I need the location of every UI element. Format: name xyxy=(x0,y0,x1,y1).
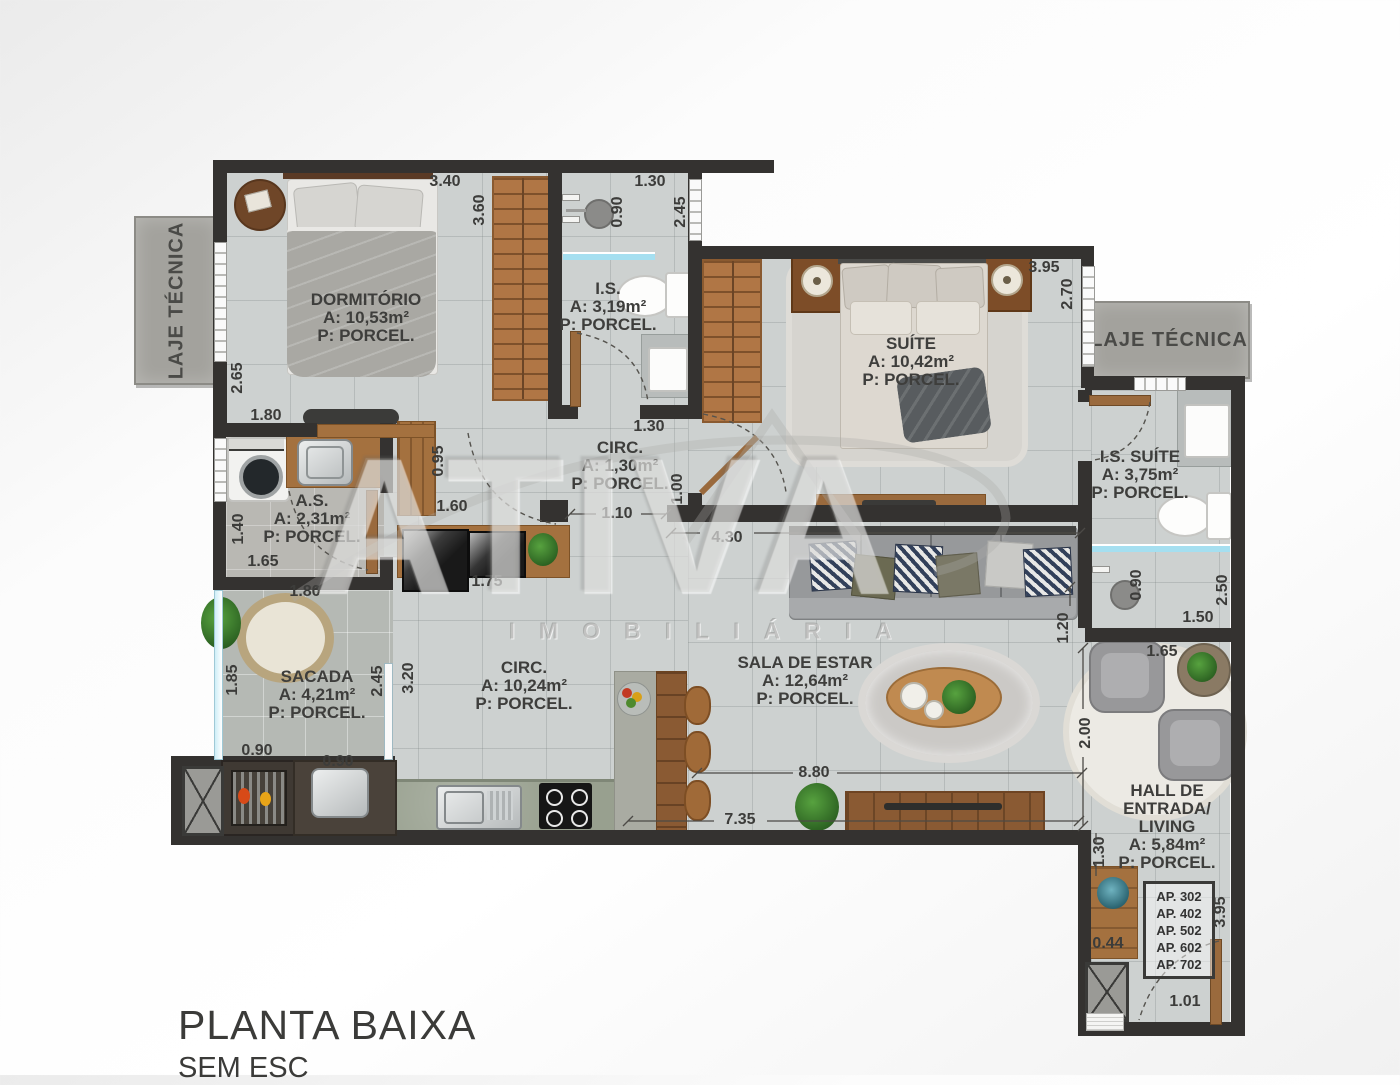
dimension-lines xyxy=(565,509,1096,876)
plan-title: PLANTA BAIXA xyxy=(178,1002,476,1049)
apartment-list-item: AP. 402 xyxy=(1156,905,1201,922)
plan-scale-note: SEM ESC xyxy=(178,1052,476,1085)
watermark-logo-shapes xyxy=(292,416,1006,598)
apartment-list-item: AP. 502 xyxy=(1156,922,1201,939)
floor-plan: LAJE TÉCNICA LAJE TÉCNICA xyxy=(0,0,1400,1075)
title-block: PLANTA BAIXA SEM ESC xyxy=(178,1002,476,1085)
apartment-list-item: AP. 702 xyxy=(1156,956,1201,973)
apartment-list-box: AP. 302AP. 402AP. 502AP. 602AP. 702 xyxy=(1143,881,1215,979)
apartment-list-item: AP. 602 xyxy=(1156,939,1201,956)
apartment-list-item: AP. 302 xyxy=(1156,888,1201,905)
